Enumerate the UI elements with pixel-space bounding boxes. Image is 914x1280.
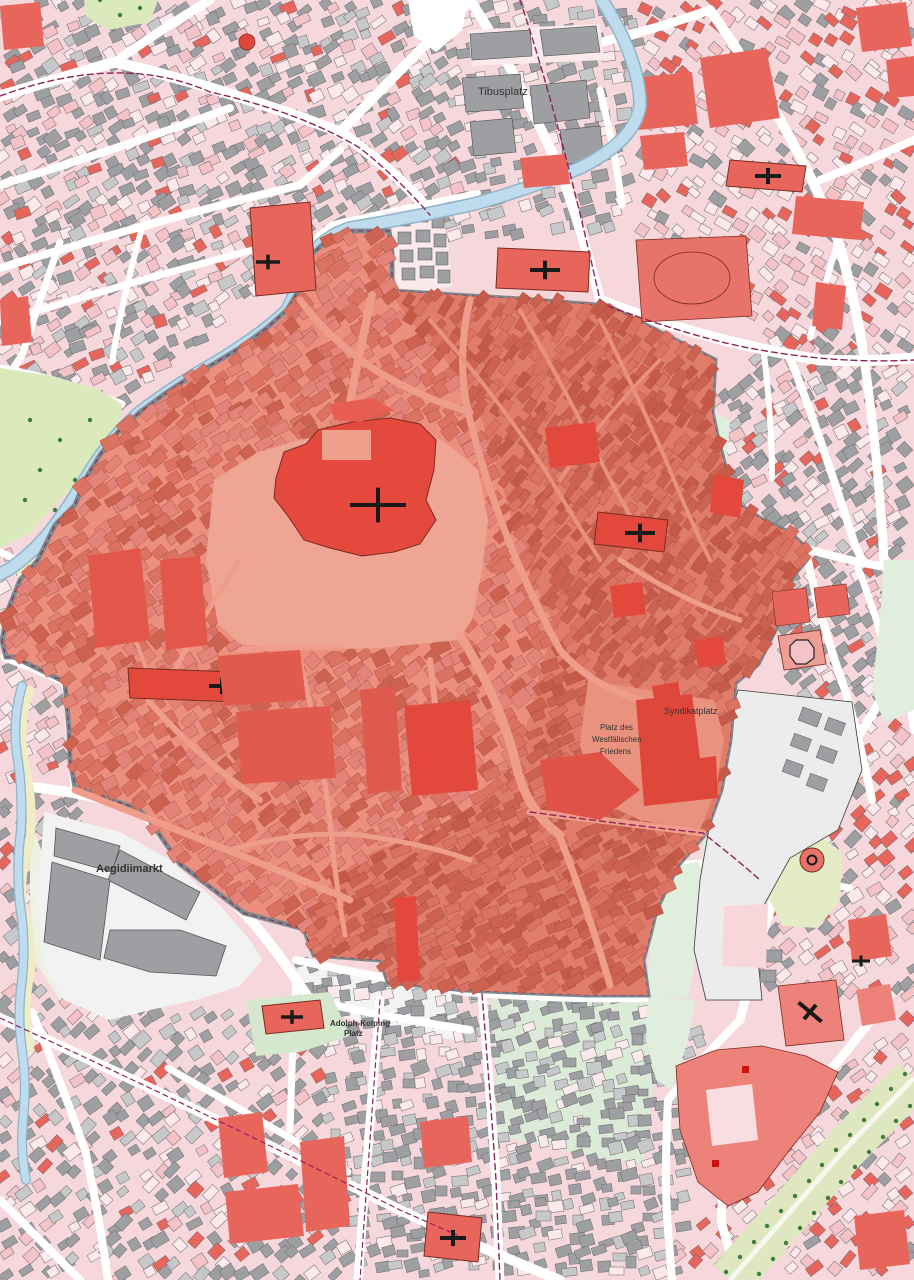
svg-text:Aegidiimarkt: Aegidiimarkt [96,863,163,875]
svg-text:Friedens: Friedens [600,747,631,756]
svg-text:Syndikatplatz: Syndikatplatz [664,706,718,716]
svg-text:Adolph-Kolping: Adolph-Kolping [330,1019,390,1028]
svg-text:Tibusplatz: Tibusplatz [478,86,528,98]
svg-text:Platz des: Platz des [600,723,633,732]
svg-text:Westfälischen: Westfälischen [592,735,642,744]
svg-text:Platz: Platz [344,1029,363,1038]
